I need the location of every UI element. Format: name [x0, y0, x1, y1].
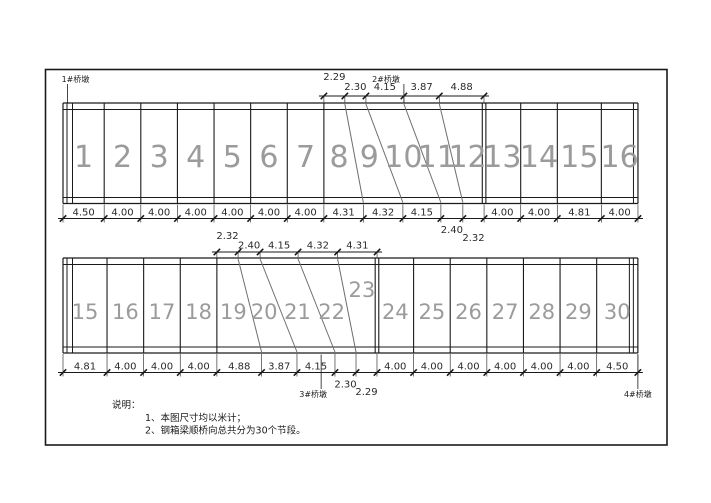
segment-number: 20	[251, 300, 278, 324]
dim-label: 4.00	[258, 208, 280, 219]
segment-number: 6	[259, 140, 278, 175]
segment-number: 15	[72, 300, 99, 324]
dim-label: 2.32	[462, 233, 484, 244]
dim-label: 4.15	[411, 208, 433, 219]
dim-label: 2.29	[355, 387, 377, 398]
segment-number: 17	[149, 300, 176, 324]
segment-number: 7	[296, 140, 315, 175]
dim-label: 2.30	[344, 82, 366, 93]
segment-number: 18	[185, 300, 212, 324]
dim-label: 4.15	[305, 362, 327, 373]
segment-number: 21	[284, 300, 311, 324]
pier-label: 2#桥墩	[372, 74, 400, 84]
dim-label: 2.40	[441, 225, 463, 236]
dim-label: 4.50	[72, 208, 94, 219]
dim-label: 4.00	[185, 208, 207, 219]
dim-label: 2.32	[216, 231, 238, 242]
dim-label: 4.00	[114, 362, 136, 373]
dim-label: 4.00	[384, 362, 406, 373]
notes-title: 说明：	[112, 399, 141, 411]
segment-number: 30	[604, 300, 631, 324]
segment-number: 1	[74, 140, 93, 175]
segment-number: 2	[113, 140, 132, 175]
dim-label: 4.00	[531, 362, 553, 373]
dim-label: 4.00	[221, 208, 243, 219]
dim-label: 4.00	[567, 362, 589, 373]
dim-label: 4.00	[111, 208, 133, 219]
dim-label: 4.32	[307, 241, 329, 252]
segment-number: 25	[419, 300, 446, 324]
dim-label: 4.88	[451, 82, 473, 93]
dim-label: 4.50	[606, 362, 628, 373]
pier-label: 1#桥墩	[62, 74, 90, 84]
dim-label: 4.15	[268, 241, 290, 252]
dim-label: 4.00	[148, 208, 170, 219]
dim-label: 4.00	[491, 208, 513, 219]
segment-number: 4	[186, 140, 205, 175]
dim-label: 4.00	[151, 362, 173, 373]
dim-label: 4.00	[457, 362, 479, 373]
segment-number: 29	[565, 300, 592, 324]
segment-number: 28	[528, 300, 555, 324]
dim-label: 4.00	[609, 208, 631, 219]
drawing-canvas: 说明： 1、本图尺寸均以米计； 2、钢箱梁顺桥向总共分为30个节段。 12345…	[0, 0, 711, 503]
segment-number: 16	[112, 300, 139, 324]
segment-number: 26	[455, 300, 482, 324]
segment-number: 3	[150, 140, 169, 175]
drawing-page: 说明： 1、本图尺寸均以米计； 2、钢箱梁顺桥向总共分为30个节段。 12345…	[0, 0, 711, 503]
dim-label: 3.87	[268, 362, 290, 373]
dim-label: 4.00	[494, 362, 516, 373]
dim-label: 2.30	[334, 380, 356, 391]
dim-label: 2.29	[323, 72, 345, 83]
segment-number: 27	[492, 300, 519, 324]
dim-label: 4.00	[294, 208, 316, 219]
dim-label: 2.40	[238, 241, 260, 252]
pier-label: 4#桥墩	[624, 389, 652, 399]
dim-label: 4.81	[568, 208, 590, 219]
dim-label: 4.00	[528, 208, 550, 219]
segment-number: 19	[220, 300, 247, 324]
dim-label: 4.32	[372, 208, 394, 219]
segment-number: 16	[601, 140, 639, 175]
dim-label: 4.00	[187, 362, 209, 373]
segment-number: 22	[318, 300, 345, 324]
segment-number: 12	[448, 140, 486, 175]
segment-number: 15	[560, 140, 598, 175]
segment-number: 24	[382, 300, 409, 324]
dim-label: 3.87	[410, 82, 432, 93]
pier-label: 3#桥墩	[299, 389, 327, 399]
segment-number: 8	[329, 140, 348, 175]
dim-label: 4.31	[346, 241, 368, 252]
dim-label: 4.88	[228, 362, 250, 373]
note-item-1: 1、本图尺寸均以米计；	[145, 412, 246, 424]
page-background	[0, 0, 711, 503]
segment-number: 13	[483, 140, 521, 175]
note-item-2: 2、钢箱梁顺桥向总共分为30个节段。	[145, 425, 306, 437]
segment-number: 23	[349, 278, 376, 302]
dim-label: 4.31	[332, 208, 354, 219]
segment-number: 9	[360, 140, 379, 175]
segment-number: 14	[520, 140, 558, 175]
dim-label: 4.81	[74, 362, 96, 373]
segment-number: 5	[223, 140, 242, 175]
dim-label: 4.00	[421, 362, 443, 373]
